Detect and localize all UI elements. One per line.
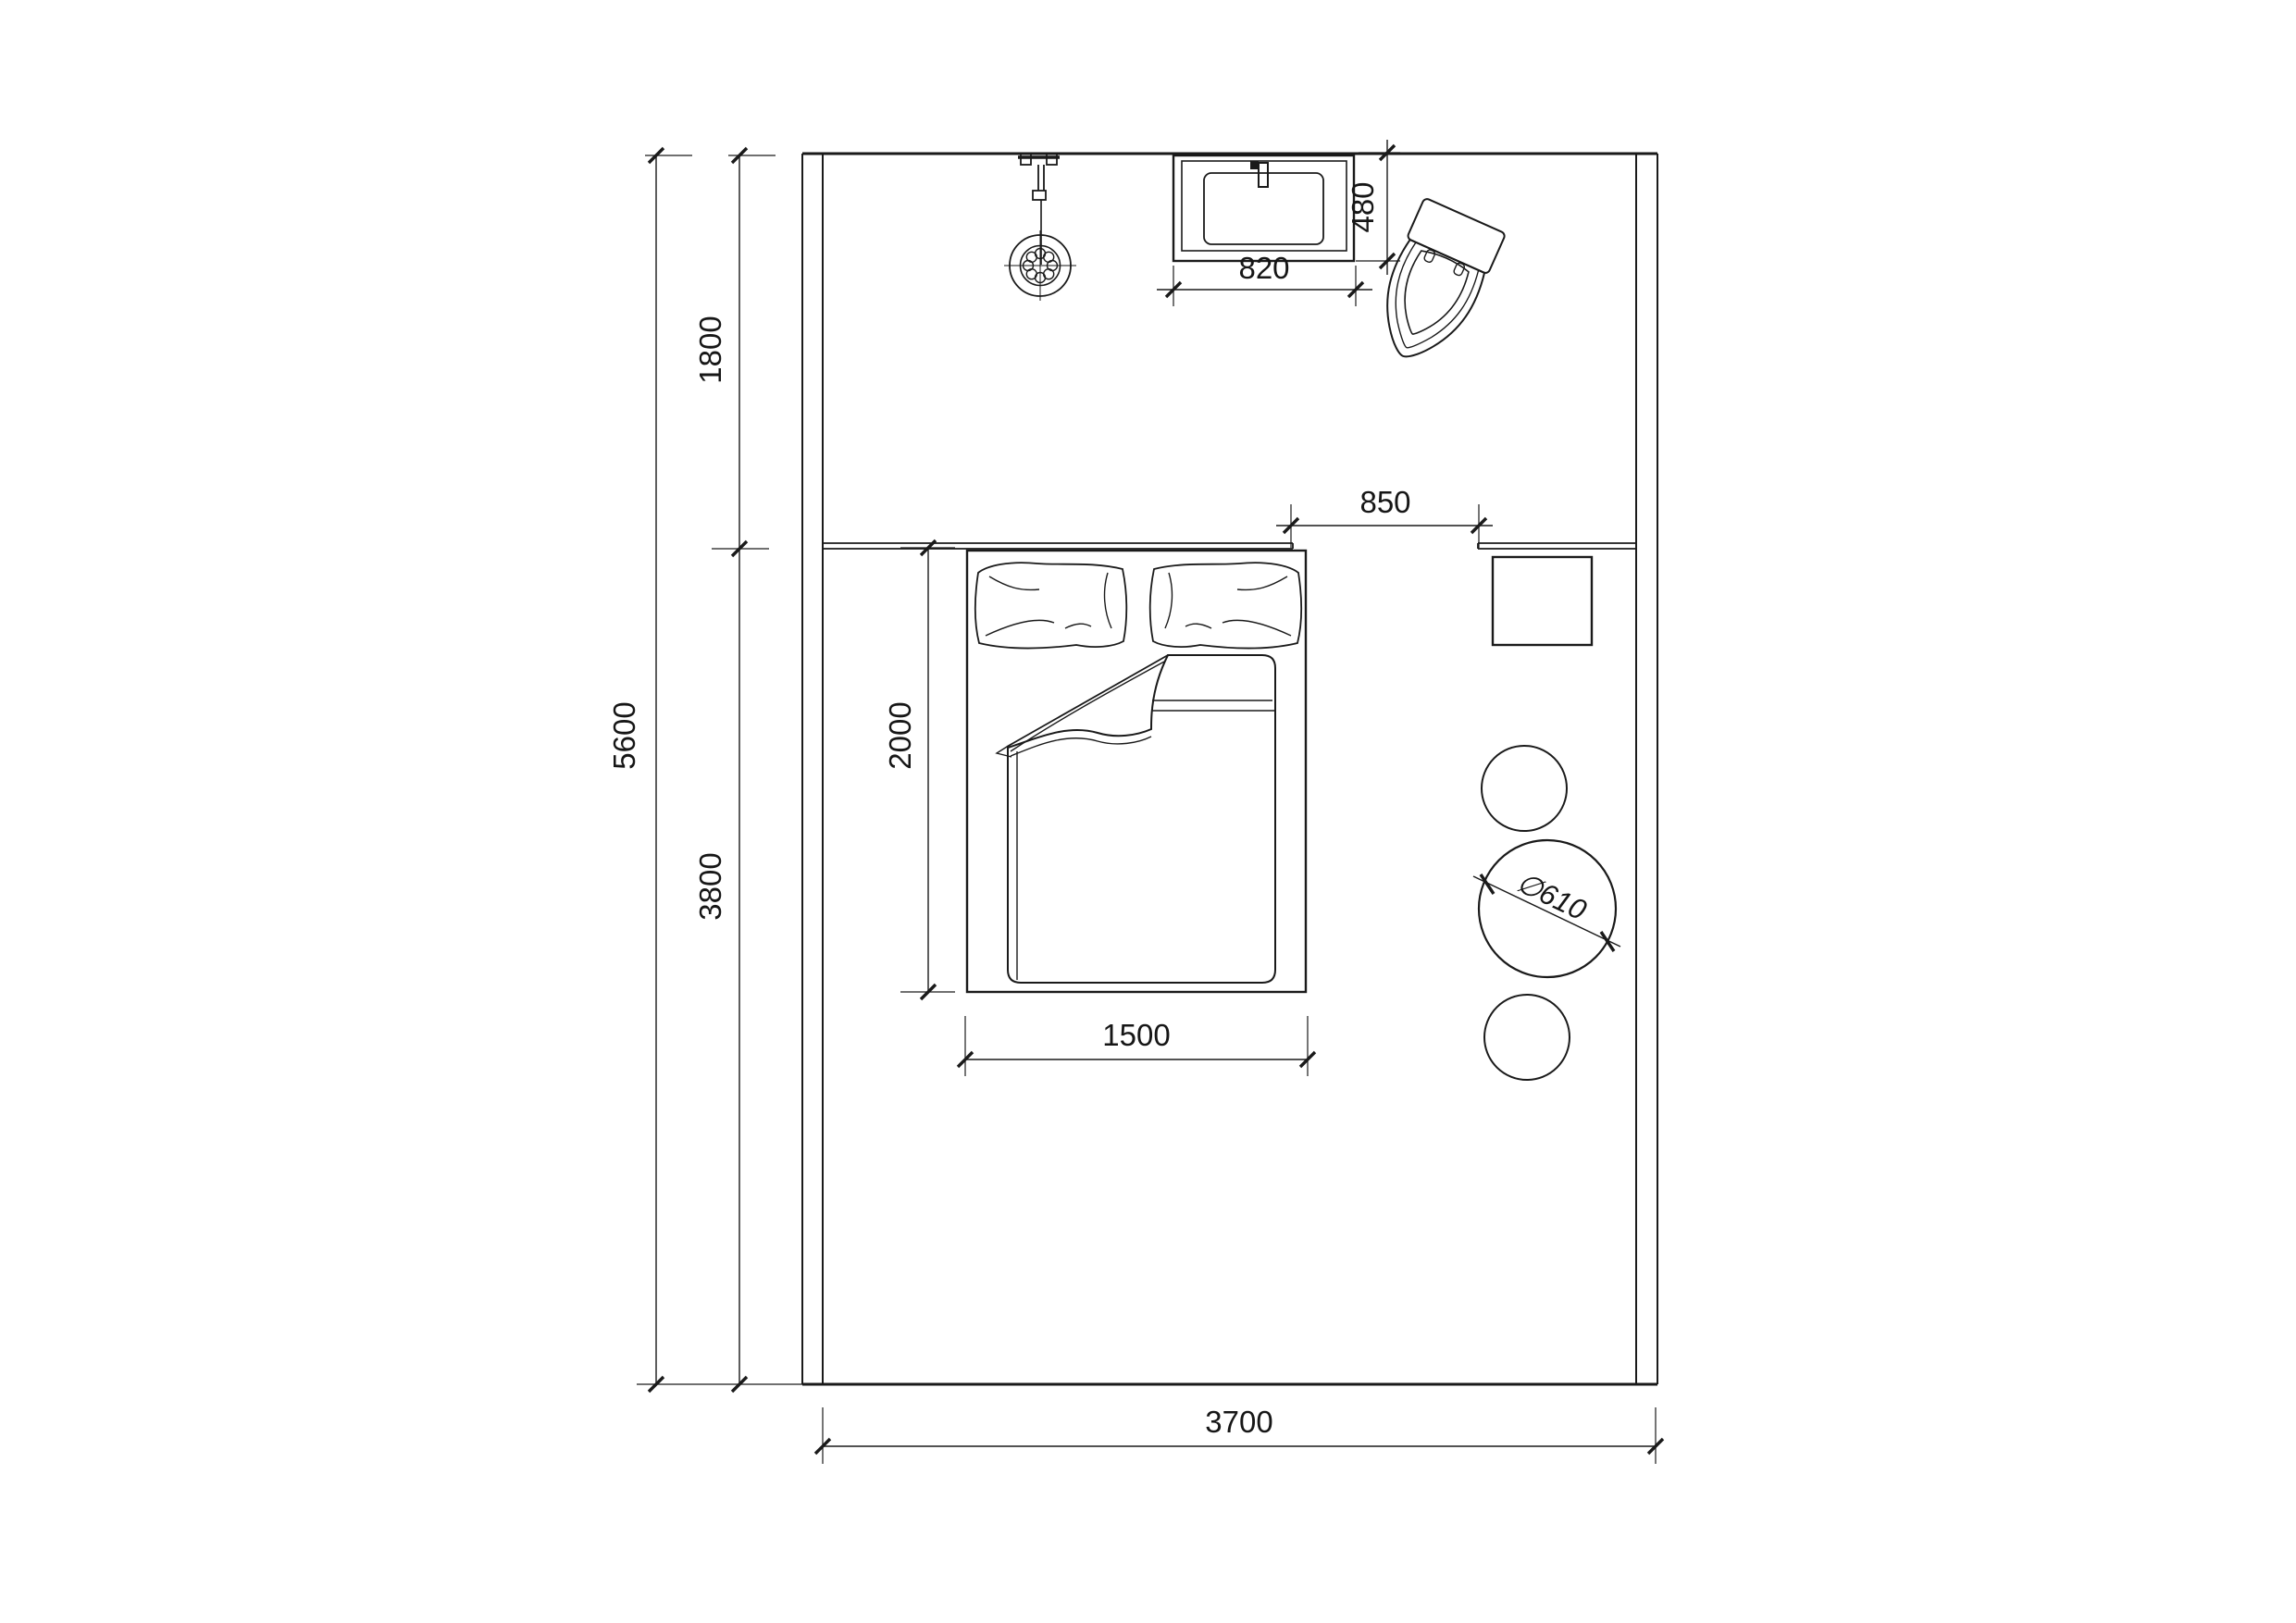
floor-plan-page: 5600 1800 3800 2000 1500 3700 8 (0, 0, 2296, 1623)
faucet-icon (1259, 163, 1268, 187)
dim-bed-width-label: 1500 (1102, 1018, 1170, 1052)
dim-upper-zone-label: 1800 (693, 316, 727, 383)
dim-table-diameter-label: ∅610 (1511, 866, 1591, 926)
stool-bottom-icon (1484, 995, 1570, 1080)
wall-shelf (1478, 543, 1636, 549)
dim-bed-length-label: 2000 (883, 701, 917, 769)
shower-head-icon (1004, 154, 1076, 301)
dim-bed-width: 1500 (958, 1016, 1315, 1076)
dim-vanity-depth-label: 480 (1346, 181, 1380, 232)
floor-plan-canvas: 5600 1800 3800 2000 1500 3700 8 (0, 0, 2296, 1623)
vanity-sink-icon (1173, 155, 1354, 261)
dim-table-diameter: ∅610 (1473, 866, 1620, 951)
pillow-right-icon (1150, 563, 1302, 648)
dim-bed-length: 2000 (883, 540, 955, 999)
dim-shelf-gap-label: 850 (1359, 485, 1410, 519)
double-bed (967, 551, 1306, 992)
dim-lower-zone: 3800 (693, 549, 747, 1392)
dim-total-width: 3700 (815, 1405, 1663, 1464)
stool-top-icon (1482, 746, 1567, 831)
toilet-icon (1362, 198, 1506, 375)
dim-total-height-label: 5600 (607, 701, 641, 769)
dim-upper-zone: 1800 (693, 148, 776, 556)
dim-vanity-width: 820 (1157, 251, 1372, 306)
headboard-shelf (823, 543, 1293, 549)
nightstand-icon (1493, 557, 1592, 645)
pillow-left-icon (975, 563, 1127, 648)
dim-vanity-width-label: 820 (1238, 251, 1289, 285)
dim-total-width-label: 3700 (1205, 1405, 1272, 1439)
dim-shelf-gap: 850 (1276, 485, 1493, 548)
duvet-icon (997, 655, 1275, 983)
dim-lower-zone-label: 3800 (693, 852, 727, 920)
